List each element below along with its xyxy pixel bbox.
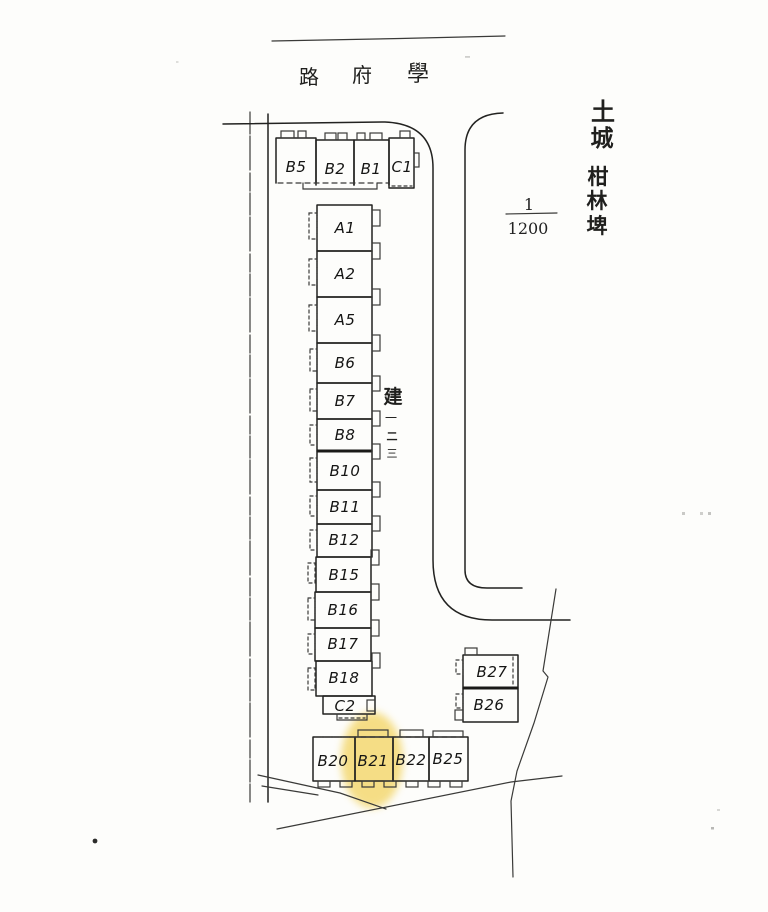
- east-tab: [372, 335, 380, 351]
- block-label-b10: B10: [330, 462, 361, 480]
- foot-tab: [428, 781, 440, 787]
- roof-tab: [400, 131, 410, 138]
- roof-tab: [357, 133, 365, 140]
- district-char-2: 城: [591, 125, 614, 152]
- building-east-pair: B27 B26: [455, 648, 518, 722]
- speck: [717, 809, 720, 811]
- west-tab: [308, 598, 315, 620]
- scale-denominator: 1200: [508, 219, 549, 238]
- east-tab: [372, 210, 380, 226]
- east-tab: [371, 620, 379, 636]
- foot-tab: [450, 781, 462, 787]
- block-label-a1: A1: [334, 219, 356, 237]
- roof-tab: [433, 731, 463, 737]
- street-char-1: 路: [299, 65, 319, 89]
- block-label-b1: B1: [361, 160, 382, 178]
- west-tab: [456, 660, 463, 674]
- block-label-b25: B25: [433, 750, 464, 768]
- east-tab: [372, 653, 380, 668]
- roof-tab: [338, 133, 347, 140]
- building-top-row: B5 B2 B1 C1: [276, 131, 419, 189]
- west-tab: [308, 668, 315, 690]
- scale-numerator: 1: [524, 195, 534, 214]
- location-name-label: 土 城 柑 林 埤: [587, 98, 616, 238]
- block-label-a2: A2: [334, 265, 356, 283]
- block-label-b15: B15: [329, 566, 360, 584]
- speck: [176, 61, 179, 63]
- west-tab: [309, 259, 317, 285]
- east-tab: [372, 289, 380, 305]
- block-label-b8: B8: [335, 426, 356, 444]
- block-label-b16: B16: [328, 601, 359, 619]
- block-label-c1: C1: [391, 158, 412, 176]
- speck: [711, 827, 714, 830]
- roof-tab: [400, 730, 423, 737]
- place-char-3: 埤: [587, 214, 608, 238]
- block-label-b17: B17: [328, 635, 359, 653]
- block-label-b21: B21: [358, 752, 389, 770]
- scanned-site-plan: B5 B2 B1 C1: [0, 0, 768, 912]
- street-char-2: 府: [352, 63, 372, 87]
- corner-tab: [455, 710, 463, 720]
- block-label-a5: A5: [334, 311, 356, 329]
- roof-tab: [281, 131, 294, 138]
- block-label-b26: B26: [474, 696, 505, 714]
- west-tab: [310, 425, 317, 445]
- block-label-b7: B7: [335, 392, 356, 410]
- block-label-b5: B5: [286, 158, 307, 176]
- roof-tab: [370, 133, 382, 140]
- speck: [708, 512, 711, 515]
- note-char-2: 一: [385, 411, 397, 425]
- place-char-1: 柑: [588, 165, 609, 189]
- speck: [93, 839, 98, 844]
- east-tab: [372, 516, 380, 531]
- street-name-label: 路 府 學: [299, 62, 429, 89]
- site-plan-svg: B5 B2 B1 C1: [0, 0, 768, 912]
- west-tab: [310, 389, 317, 411]
- block-label-b20: B20: [318, 752, 349, 770]
- west-tab: [456, 694, 463, 708]
- bottom-diagonal-long: [277, 776, 562, 829]
- scale-fraction: 1 1200: [506, 195, 557, 238]
- block-label-b2: B2: [325, 160, 346, 178]
- west-tab: [309, 213, 317, 239]
- west-tab: [310, 496, 317, 516]
- east-jagged-boundary: [511, 589, 556, 877]
- district-char-1: 土: [591, 98, 615, 126]
- west-tab: [310, 458, 317, 482]
- west-tab: [308, 563, 315, 583]
- speck: [465, 56, 470, 58]
- note-char-1: 建: [383, 385, 402, 408]
- east-tab: [372, 411, 380, 426]
- site-boundary-line: [223, 122, 570, 620]
- street-char-3: 學: [407, 62, 429, 87]
- east-road-edge-line: [465, 113, 522, 588]
- block-label-b12: B12: [329, 531, 360, 549]
- block-label-b22: B22: [396, 751, 427, 769]
- foot-tab: [406, 781, 418, 787]
- east-tab: [372, 243, 380, 259]
- building-main-column: A1 A2 A5 B6 B7 B8 B10 B11 B12 B15 B16 B1…: [308, 205, 380, 720]
- speck: [682, 512, 685, 515]
- top-row-lower-step: [303, 183, 377, 189]
- block-label-c2: C2: [334, 697, 355, 715]
- east-tab: [371, 584, 379, 600]
- west-tab: [308, 634, 315, 654]
- street-top-edge-line: [272, 36, 505, 41]
- west-tab: [310, 349, 317, 371]
- roof-tab: [298, 131, 306, 138]
- bottom-diagonal-2: [262, 786, 318, 795]
- roof-tab: [325, 133, 336, 140]
- note-char-3: 二: [387, 430, 398, 443]
- block-label-b18: B18: [329, 669, 360, 687]
- block-label-b27: B27: [477, 663, 508, 681]
- west-tab: [309, 305, 317, 331]
- scale-fraction-bar: [506, 213, 557, 214]
- speck: [700, 512, 703, 515]
- east-tab: [372, 482, 380, 497]
- place-char-2: 林: [587, 189, 608, 213]
- east-tab: [372, 376, 380, 391]
- roof-tab: [465, 648, 477, 655]
- east-tab: [367, 700, 375, 711]
- foot-tab: [318, 781, 330, 787]
- note-char-4: 三: [387, 447, 398, 460]
- east-tab: [372, 444, 380, 459]
- block-label-b6: B6: [335, 354, 356, 372]
- block-label-b11: B11: [330, 498, 361, 516]
- phase-note-label: 建 一 二 三: [383, 385, 402, 460]
- west-tab: [310, 530, 317, 550]
